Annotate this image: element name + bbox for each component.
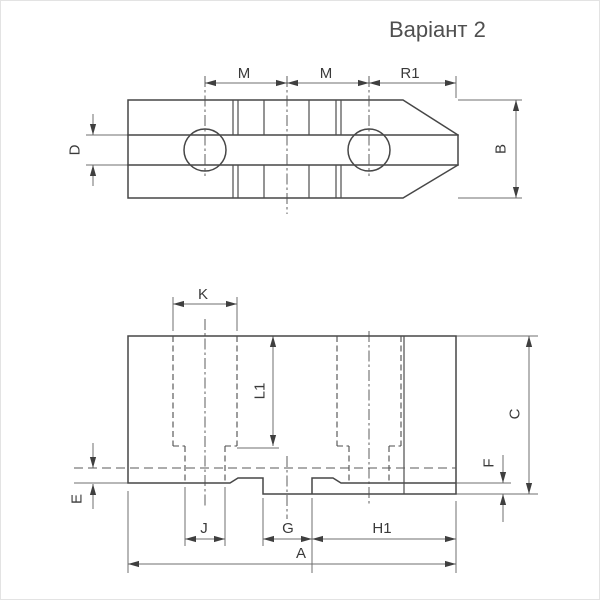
dim-label-m2: M bbox=[320, 65, 333, 82]
bottom-view: K L1 C F E J G H1 A bbox=[69, 286, 539, 573]
dim-label-h1: H1 bbox=[372, 520, 391, 537]
dim-label-k: K bbox=[198, 286, 208, 303]
dim-label-j: J bbox=[200, 520, 208, 537]
dim-label-g: G bbox=[282, 520, 294, 537]
slot-edges bbox=[128, 135, 458, 165]
jaw-outline-top bbox=[128, 100, 458, 198]
dim-label-d: D bbox=[67, 144, 84, 155]
top-view-centerlines bbox=[205, 76, 369, 214]
bottom-view-extension-lines bbox=[74, 297, 538, 573]
jaw-outline-side bbox=[128, 336, 456, 494]
dim-label-c: C bbox=[507, 408, 524, 419]
dim-label-r1: R1 bbox=[400, 65, 419, 82]
bottom-view-centerlines bbox=[205, 319, 369, 519]
dim-label-f: F bbox=[481, 458, 498, 467]
top-view-arrowheads bbox=[90, 80, 519, 198]
dim-label-m1: M bbox=[238, 65, 251, 82]
bottom-view-arrowheads bbox=[90, 301, 532, 567]
technical-drawing: Варіант 2 M M R1 bbox=[1, 1, 599, 599]
dim-label-e: E bbox=[69, 494, 86, 504]
top-view-extension-lines bbox=[86, 76, 522, 198]
dim-label-a: A bbox=[296, 545, 306, 562]
variant-title: Варіант 2 bbox=[389, 17, 486, 42]
top-view: M M R1 D B bbox=[67, 65, 523, 214]
dim-label-l1: L1 bbox=[252, 383, 269, 400]
dim-label-b: B bbox=[493, 144, 510, 154]
drawing-sheet: Варіант 2 M M R1 bbox=[0, 0, 600, 600]
